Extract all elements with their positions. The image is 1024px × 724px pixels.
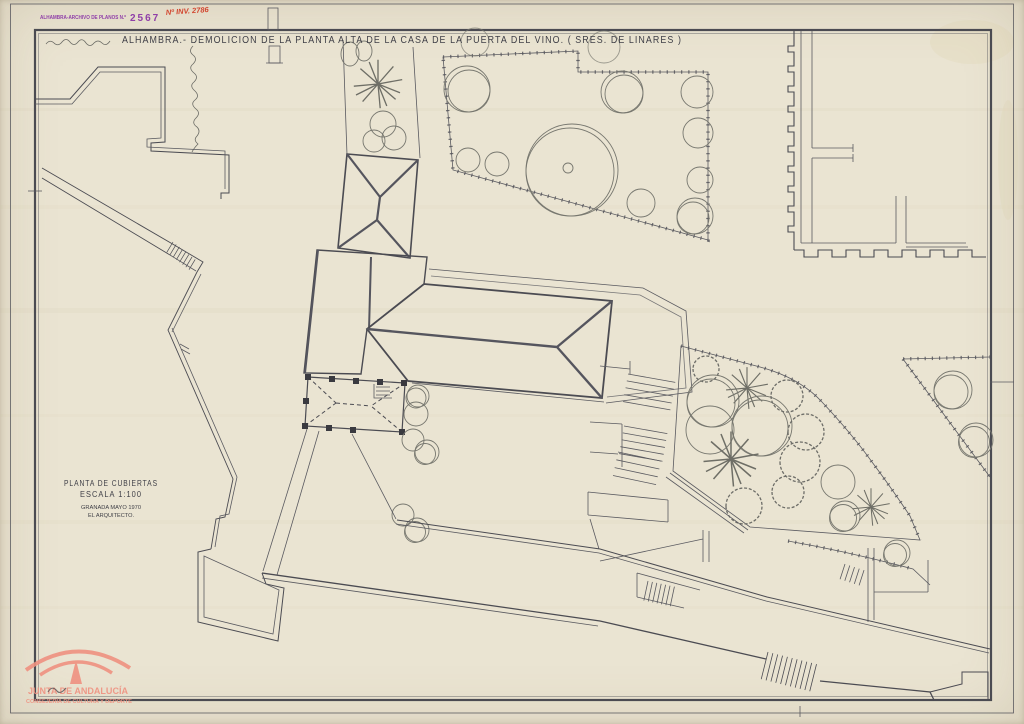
eaves-outline xyxy=(412,269,692,403)
walkways xyxy=(198,429,990,700)
corner-steps xyxy=(930,672,988,700)
title-strip-mark xyxy=(269,46,280,63)
top-margin-mark xyxy=(268,8,278,30)
path-strip-north xyxy=(341,40,420,158)
lower-wall xyxy=(262,573,766,659)
scan-texture xyxy=(0,20,1024,609)
pergola-mini-stair xyxy=(374,384,392,398)
place-date-label: GRANADA MAYO 1970 xyxy=(81,505,141,511)
wall-mark xyxy=(180,344,190,354)
garden-boundary xyxy=(443,51,708,240)
palm-plant xyxy=(354,60,402,108)
vegetation-edges xyxy=(46,40,199,153)
garden-south xyxy=(600,473,930,622)
crenellated-south-wall xyxy=(794,250,986,257)
walk-band xyxy=(42,168,176,255)
stamp-inventory-number: Nº INV. 2786 xyxy=(166,5,210,17)
tower xyxy=(198,549,284,641)
stamp-number: 2567 xyxy=(130,13,160,24)
garden-east xyxy=(673,346,920,540)
crenellated-west-wall xyxy=(788,31,794,250)
pergola xyxy=(302,374,407,435)
upper-walkway xyxy=(397,520,990,649)
big-tree xyxy=(526,124,618,216)
plan-drawing: ALHAMBRA-ARCHIVO DE PLANOS N.º 2567 Nº I… xyxy=(0,0,1024,724)
watermark-org: JUNTA DE ANDALUCÍA xyxy=(28,686,128,696)
watermark-junta-andalucia: JUNTA DE ANDALUCÍA CONSEJERÍA DE CULTURA… xyxy=(26,651,132,705)
garden-trees xyxy=(444,28,713,234)
scale-label: ESCALA 1:100 xyxy=(80,489,142,499)
archive-stamp: ALHAMBRA-ARCHIVO DE PLANOS N.º 2567 Nº I… xyxy=(40,5,210,24)
bush-circles xyxy=(392,385,439,543)
plan-sheet: ALHAMBRA-ARCHIVO DE PLANOS N.º 2567 Nº I… xyxy=(0,0,1024,724)
partition-walls xyxy=(812,31,968,247)
inner-wall-lines xyxy=(801,31,966,243)
pergola-posts xyxy=(302,374,407,435)
plan-type-label: PLANTA DE CUBIERTAS xyxy=(64,478,158,488)
plan-label-block: PLANTA DE CUBIERTAS ESCALA 1:100 GRANADA… xyxy=(64,478,158,519)
stamp-label: ALHAMBRA-ARCHIVO DE PLANOS N.º xyxy=(40,15,126,21)
building-top-right xyxy=(788,31,986,257)
architect-label: EL ARQUITECTO. xyxy=(88,513,134,519)
grand-stair xyxy=(761,652,816,691)
drawing-title: ALHAMBRA.- DEMOLICION DE LA PLANTA ALTA … xyxy=(122,35,682,46)
watermark-department: CONSEJERÍA DE CULTURA Y DEPORTE xyxy=(26,697,132,705)
